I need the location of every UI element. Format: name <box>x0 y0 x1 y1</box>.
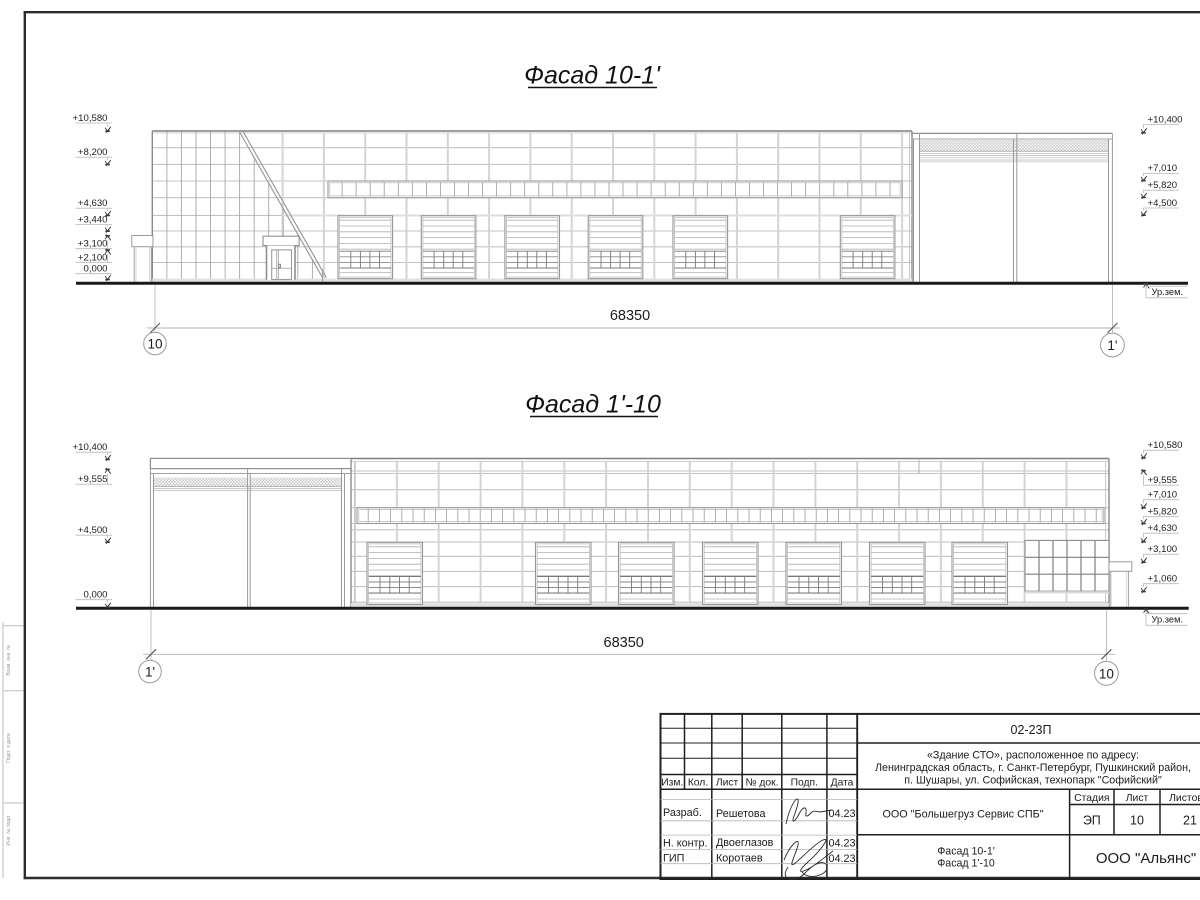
svg-text:1': 1' <box>145 664 155 679</box>
svg-text:+4,630: +4,630 <box>1148 523 1178 534</box>
svg-text:Изм.: Изм. <box>661 777 683 788</box>
svg-text:Фасад 10-1': Фасад 10-1' <box>937 846 995 858</box>
svg-text:Подп. и дата: Подп. и дата <box>6 733 12 763</box>
svg-text:+4,500: +4,500 <box>78 525 108 536</box>
svg-text:+3,440: +3,440 <box>78 214 108 225</box>
svg-text:Ур.зем.: Ур.зем. <box>1152 615 1184 625</box>
svg-text:п. Шушары, ул. Софийская, техн: п. Шушары, ул. Софийская, технопарк "Соф… <box>904 775 1162 787</box>
svg-text:21: 21 <box>1183 814 1197 828</box>
svg-text:+10,580: +10,580 <box>73 113 108 124</box>
svg-text:Стадия: Стадия <box>1074 793 1109 804</box>
svg-text:0,000: 0,000 <box>83 264 107 275</box>
svg-text:+10,580: +10,580 <box>1148 440 1183 451</box>
svg-text:+9,555: +9,555 <box>1148 475 1178 486</box>
svg-text:10: 10 <box>147 336 162 351</box>
svg-text:Ленинградская область, г. Санк: Ленинградская область, г. Санкт-Петербур… <box>875 762 1191 774</box>
svg-text:ООО "Альянс": ООО "Альянс" <box>1096 850 1196 867</box>
svg-text:Решетова: Решетова <box>716 808 766 820</box>
svg-text:+1,060: +1,060 <box>1148 574 1178 585</box>
svg-text:«Здание СТО», расположенное по: «Здание СТО», расположенное по адресу: <box>927 750 1139 762</box>
svg-text:04.23: 04.23 <box>828 853 855 865</box>
svg-text:Двоеглазов: Двоеглазов <box>716 837 774 849</box>
svg-text:Листов: Листов <box>1169 793 1200 804</box>
svg-text:Дата: Дата <box>831 777 854 788</box>
svg-text:Фасад 1'-10: Фасад 1'-10 <box>937 858 995 870</box>
svg-text:Коротаев: Коротаев <box>716 853 763 865</box>
svg-text:+8,200: +8,200 <box>78 147 108 158</box>
svg-text:+10,400: +10,400 <box>1148 114 1183 125</box>
svg-text:+4,630: +4,630 <box>78 198 108 209</box>
svg-text:10: 10 <box>1099 666 1114 681</box>
svg-text:Фасад 1'-10: Фасад 1'-10 <box>525 391 661 419</box>
svg-text:ООО "Большегруз Сервис СПБ": ООО "Большегруз Сервис СПБ" <box>882 809 1043 821</box>
svg-text:+2,100: +2,100 <box>78 252 108 263</box>
svg-text:+10,400: +10,400 <box>73 442 108 453</box>
svg-text:Разраб.: Разраб. <box>663 807 702 819</box>
svg-text:+7,010: +7,010 <box>1148 163 1178 174</box>
svg-text:Кол.: Кол. <box>688 777 708 788</box>
svg-text:Н. контр.: Н. контр. <box>663 838 708 850</box>
svg-text:+5,820: +5,820 <box>1148 507 1178 518</box>
svg-text:+5,820: +5,820 <box>1148 180 1178 191</box>
svg-text:02-23П: 02-23П <box>1011 723 1052 737</box>
svg-text:Подп.: Подп. <box>791 777 818 788</box>
svg-text:+3,100: +3,100 <box>1148 544 1178 555</box>
svg-text:0,000: 0,000 <box>83 590 107 601</box>
svg-text:Лист: Лист <box>716 777 739 788</box>
svg-text:Инв. № подл.: Инв. № подл. <box>6 814 12 845</box>
svg-text:+9,555: +9,555 <box>78 474 108 485</box>
svg-text:68350: 68350 <box>604 635 644 651</box>
svg-text:Фасад 10-1': Фасад 10-1' <box>524 62 661 90</box>
svg-text:68350: 68350 <box>610 308 650 324</box>
svg-text:+4,500: +4,500 <box>1148 198 1178 209</box>
svg-text:04.23: 04.23 <box>828 838 855 850</box>
svg-text:04.23: 04.23 <box>828 808 855 820</box>
svg-text:10: 10 <box>1130 814 1144 828</box>
svg-text:№ док.: № док. <box>745 777 778 788</box>
svg-text:Взам. инв. №: Взам. инв. № <box>6 645 12 676</box>
svg-text:+3,100: +3,100 <box>78 239 108 250</box>
svg-text:ЭП: ЭП <box>1083 814 1101 828</box>
svg-text:ГИП: ГИП <box>663 853 684 865</box>
svg-text:Лист: Лист <box>1126 793 1149 804</box>
svg-text:Ур.зем.: Ур.зем. <box>1152 287 1184 297</box>
svg-text:+7,010: +7,010 <box>1148 490 1178 501</box>
svg-text:1': 1' <box>1107 338 1117 353</box>
